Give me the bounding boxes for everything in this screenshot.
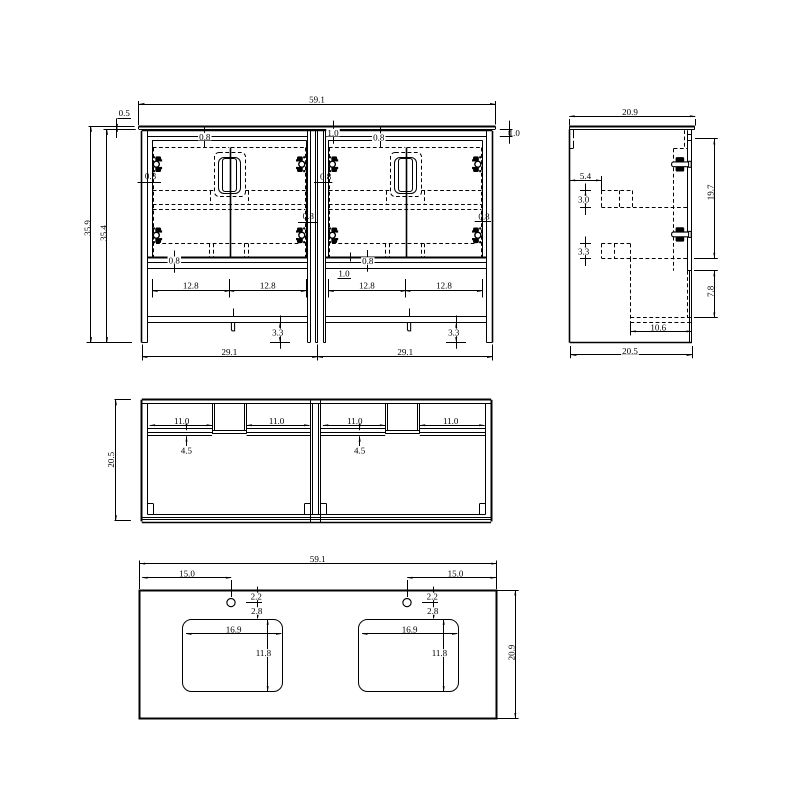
svg-text:2.8: 2.8	[251, 606, 263, 616]
svg-text:0.8: 0.8	[169, 256, 181, 266]
svg-text:4.5: 4.5	[354, 446, 366, 456]
svg-text:2.2: 2.2	[427, 592, 438, 602]
svg-text:11.8: 11.8	[432, 648, 448, 658]
svg-text:35.9: 35.9	[83, 220, 93, 236]
svg-text:0.8: 0.8	[320, 172, 332, 182]
svg-text:12.8: 12.8	[359, 281, 375, 291]
svg-text:29.1: 29.1	[397, 347, 413, 357]
svg-text:1.0: 1.0	[509, 128, 521, 138]
svg-text:11.0: 11.0	[443, 416, 459, 426]
svg-text:20.5: 20.5	[622, 346, 638, 356]
svg-text:5.4: 5.4	[580, 171, 592, 181]
svg-text:29.1: 29.1	[222, 347, 238, 357]
svg-text:11.8: 11.8	[256, 648, 272, 658]
svg-text:12.8: 12.8	[436, 281, 452, 291]
svg-text:15.0: 15.0	[448, 568, 464, 578]
svg-text:35.4: 35.4	[99, 225, 109, 241]
svg-text:7.8: 7.8	[705, 285, 715, 297]
svg-text:2.8: 2.8	[427, 606, 439, 616]
svg-text:0.8: 0.8	[373, 132, 385, 142]
svg-text:16.9: 16.9	[226, 625, 242, 635]
svg-text:0.5: 0.5	[119, 108, 131, 118]
svg-text:3.3: 3.3	[578, 247, 590, 257]
svg-text:10.6: 10.6	[650, 322, 666, 332]
svg-text:19.7: 19.7	[705, 184, 715, 200]
svg-text:59.1: 59.1	[309, 94, 325, 104]
svg-text:11.0: 11.0	[269, 416, 285, 426]
svg-text:12.8: 12.8	[260, 281, 276, 291]
svg-text:16.9: 16.9	[402, 625, 418, 635]
svg-text:20.9: 20.9	[622, 107, 638, 117]
svg-text:0.8: 0.8	[362, 256, 374, 266]
svg-text:15.0: 15.0	[179, 568, 195, 578]
svg-text:3.3: 3.3	[272, 328, 284, 338]
svg-text:59.1: 59.1	[310, 554, 326, 564]
svg-text:0.8: 0.8	[303, 211, 315, 221]
svg-text:1.0: 1.0	[338, 269, 350, 279]
svg-text:0.8: 0.8	[478, 211, 490, 221]
svg-text:3.0: 3.0	[578, 195, 590, 205]
svg-text:0.8: 0.8	[145, 171, 157, 181]
svg-text:0.8: 0.8	[199, 132, 211, 142]
svg-text:1.0: 1.0	[327, 128, 339, 138]
svg-text:20.5: 20.5	[106, 451, 116, 467]
svg-text:2.2: 2.2	[251, 592, 262, 602]
svg-text:4.5: 4.5	[181, 446, 193, 456]
svg-text:12.8: 12.8	[183, 281, 199, 291]
svg-text:11.0: 11.0	[347, 416, 363, 426]
svg-text:11.0: 11.0	[174, 416, 190, 426]
svg-text:3.3: 3.3	[448, 328, 460, 338]
svg-text:20.9: 20.9	[506, 644, 516, 660]
